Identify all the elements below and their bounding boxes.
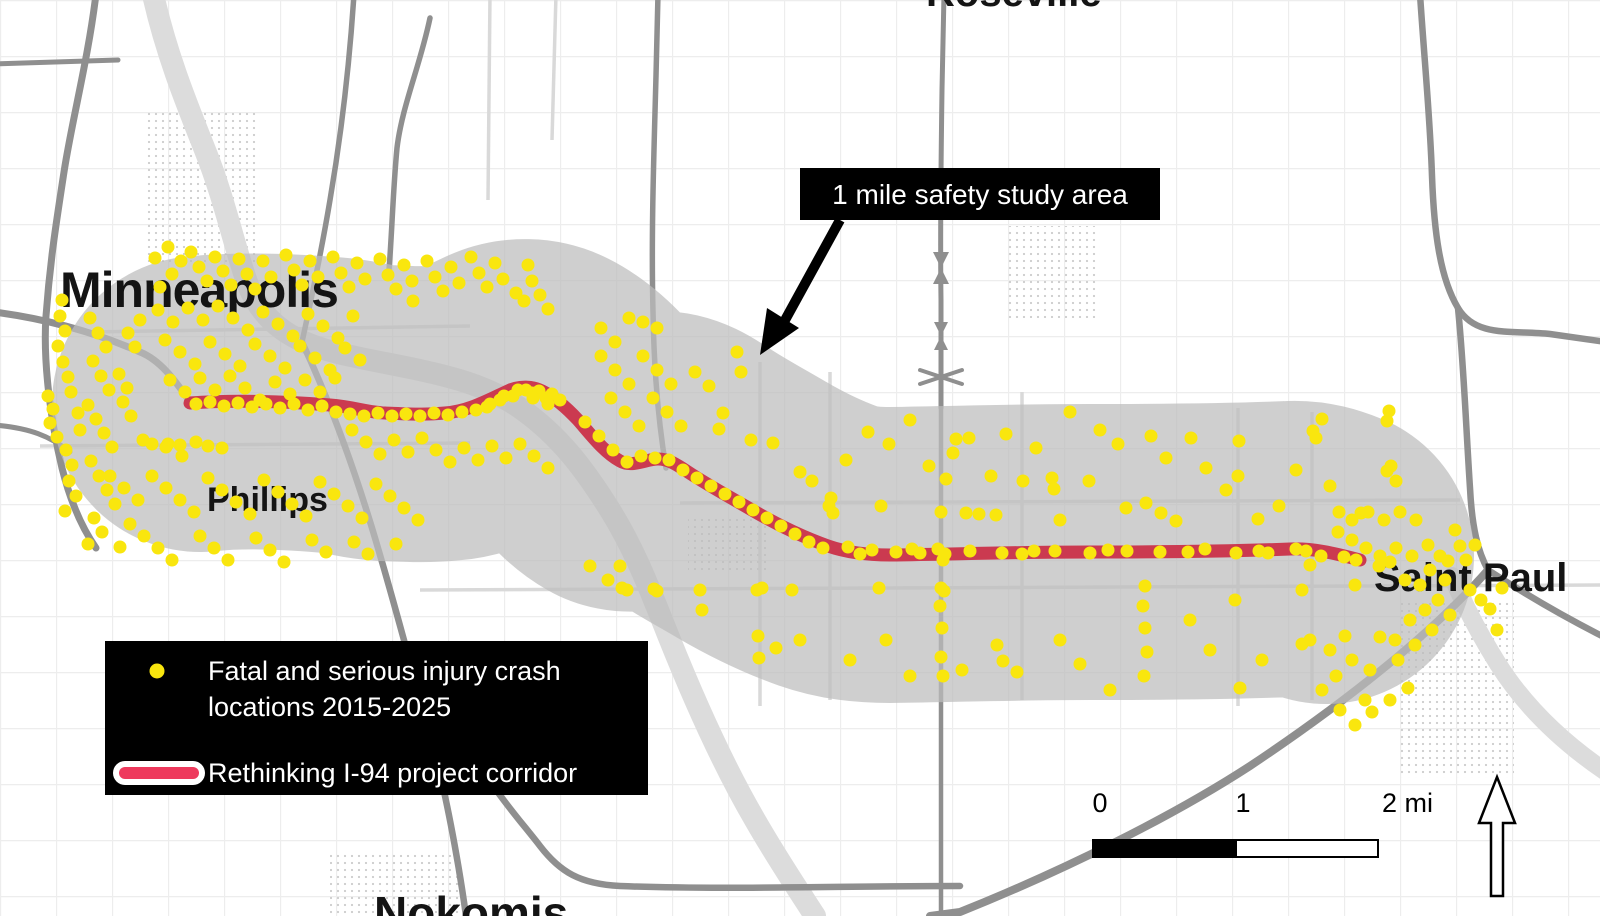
- crash-dot: [402, 446, 415, 459]
- crash-dot: [649, 452, 662, 465]
- crash-dot: [456, 406, 469, 419]
- crash-dot: [370, 478, 383, 491]
- crash-dot: [202, 440, 215, 453]
- crash-dot: [1185, 432, 1198, 445]
- crash-dot: [862, 426, 875, 439]
- crash-dot: [346, 424, 359, 437]
- crash-dot: [500, 452, 513, 465]
- crash-dot: [327, 251, 340, 264]
- crash-dot: [407, 295, 420, 308]
- crash-dot: [98, 427, 111, 440]
- crash-dot: [964, 545, 977, 558]
- crash-dot: [359, 273, 372, 286]
- crash-dot: [1112, 438, 1125, 451]
- crash-dot: [388, 434, 401, 447]
- crash-dot: [458, 442, 471, 455]
- crash-dot: [997, 655, 1010, 668]
- crash-dot: [786, 584, 799, 597]
- crash-dot: [194, 372, 207, 385]
- crash-dot: [1384, 694, 1397, 707]
- crash-dot: [621, 584, 634, 597]
- crash-dot: [651, 322, 664, 335]
- crash-dot: [937, 670, 950, 683]
- crash-dot: [428, 407, 441, 420]
- crash-dot: [190, 398, 203, 411]
- crash-dot: [382, 269, 395, 282]
- crash-dot: [1064, 406, 1077, 419]
- crash-dot: [1392, 654, 1405, 667]
- crash-dot: [437, 285, 450, 298]
- crash-dot: [756, 582, 769, 595]
- crash-dot: [890, 546, 903, 559]
- crash-dot: [1256, 654, 1269, 667]
- crash-dot: [442, 409, 455, 422]
- crash-dot: [623, 378, 636, 391]
- crash-dot: [412, 514, 425, 527]
- crash-dot: [1362, 506, 1375, 519]
- crash-dot: [935, 506, 948, 519]
- crash-dot: [677, 464, 690, 477]
- crash-dot: [1390, 542, 1403, 555]
- scale-tick-1: 1: [1235, 788, 1250, 818]
- crash-dot: [614, 560, 627, 573]
- crash-dot: [152, 542, 165, 555]
- crash-dot: [1316, 413, 1329, 426]
- crash-dot: [47, 403, 60, 416]
- crash-dot: [360, 436, 373, 449]
- crash-dot: [288, 398, 301, 411]
- crash-dot: [372, 407, 385, 420]
- crash-dot: [227, 312, 240, 325]
- crash-dot: [1074, 658, 1087, 671]
- crash-dot: [85, 455, 98, 468]
- crash-dot: [66, 459, 79, 472]
- crash-dot: [875, 500, 888, 513]
- crash-dot: [344, 408, 357, 421]
- crash-dot: [1366, 706, 1379, 719]
- crash-dot: [745, 434, 758, 447]
- crash-dot: [159, 334, 172, 347]
- crash-dot: [209, 384, 222, 397]
- crash-dot: [579, 416, 592, 429]
- crash-dot: [188, 506, 201, 519]
- crash-dot: [542, 398, 555, 411]
- crash-dot: [1120, 502, 1133, 515]
- crash-dot: [154, 281, 167, 294]
- crash-dot: [174, 494, 187, 507]
- crash-dot: [320, 546, 333, 559]
- crash-dot: [59, 505, 72, 518]
- crash-dot: [1160, 452, 1173, 465]
- crash-dot: [202, 472, 215, 485]
- crash-dot: [201, 275, 214, 288]
- crash-dot: [1011, 666, 1024, 679]
- crash-dot: [209, 251, 222, 264]
- crash-dot: [288, 264, 301, 277]
- crash-dot: [1324, 644, 1337, 657]
- crash-dot: [1121, 545, 1134, 558]
- crash-dot: [489, 257, 502, 270]
- crash-dot: [733, 496, 746, 509]
- crash-dot: [1232, 470, 1245, 483]
- crash-dot: [54, 310, 67, 323]
- crash-dot: [803, 536, 816, 549]
- crash-dot: [1339, 630, 1352, 643]
- crash-dot: [429, 271, 442, 284]
- crash-dot: [534, 289, 547, 302]
- safety-study-map: Minneapolis Phillips Saint Paul Rosevill…: [0, 0, 1600, 916]
- crash-dot: [1304, 634, 1317, 647]
- crash-dot: [1334, 704, 1347, 717]
- crash-dot: [1084, 547, 1097, 560]
- crash-dot: [42, 390, 55, 403]
- crash-dot: [212, 300, 225, 313]
- crash-dot: [257, 306, 270, 319]
- crash-dot: [794, 466, 807, 479]
- crash-dot: [1083, 475, 1096, 488]
- crash-dot: [300, 510, 313, 523]
- crash-dot: [95, 370, 108, 383]
- crash-dot: [90, 413, 103, 426]
- crash-dot: [358, 410, 371, 423]
- crash-dot: [1381, 465, 1394, 478]
- crash-dot: [775, 520, 788, 533]
- crash-dot: [609, 336, 622, 349]
- crash-dot: [219, 348, 232, 361]
- crash-dot: [103, 384, 116, 397]
- crash-dot: [481, 281, 494, 294]
- crash-dot: [257, 255, 270, 268]
- crash-dot: [430, 444, 443, 457]
- crash-dot: [473, 267, 486, 280]
- crash-dot: [232, 397, 245, 410]
- crash-dot: [767, 437, 780, 450]
- crash-dot: [1346, 654, 1359, 667]
- crash-dot: [204, 336, 217, 349]
- crash-dot: [960, 507, 973, 520]
- crash-dot: [689, 366, 702, 379]
- crash-dot: [747, 504, 760, 517]
- crash-dot: [390, 283, 403, 296]
- crash-dot: [121, 382, 134, 395]
- crash-dot: [904, 414, 917, 427]
- crash-dot: [1349, 579, 1362, 592]
- crash-dot: [1000, 428, 1013, 441]
- crash-dot: [390, 538, 403, 551]
- crash-dot: [794, 634, 807, 647]
- crash-dot: [605, 392, 618, 405]
- crash-dot: [204, 396, 217, 409]
- crash-dot: [44, 417, 57, 430]
- crash-dot: [445, 261, 458, 274]
- crash-dot: [304, 255, 317, 268]
- crash-dot: [1017, 475, 1030, 488]
- crash-dot: [691, 472, 704, 485]
- map-canvas: Minneapolis Phillips Saint Paul Rosevill…: [0, 0, 1600, 916]
- legend-item1-line2: locations 2015-2025: [208, 692, 451, 722]
- legend: Fatal and serious injury crash locations…: [105, 641, 648, 795]
- crash-dot: [735, 366, 748, 379]
- crash-dot: [465, 251, 478, 264]
- crash-dot: [1350, 554, 1363, 567]
- crash-dot: [113, 368, 126, 381]
- crash-dot: [619, 406, 632, 419]
- crash-dot: [595, 322, 608, 335]
- crash-dot: [398, 259, 411, 272]
- crash-dot: [1359, 694, 1372, 707]
- crash-dot: [1229, 594, 1242, 607]
- crash-dot: [854, 548, 867, 561]
- crash-dot: [1304, 559, 1317, 572]
- crash-dot: [1233, 435, 1246, 448]
- crash-dot: [100, 341, 113, 354]
- crash-dot: [554, 394, 567, 407]
- crash-dot: [1030, 442, 1043, 455]
- crash-dot: [956, 664, 969, 677]
- crash-dot: [1139, 580, 1152, 593]
- crash-dot: [472, 454, 485, 467]
- crash-dot: [182, 302, 195, 315]
- crash-dot: [264, 544, 277, 557]
- crash-dot: [486, 440, 499, 453]
- crash-dot: [1046, 472, 1059, 485]
- crash-dot: [866, 544, 879, 557]
- crash-dot: [950, 433, 963, 446]
- crash-dot: [507, 390, 520, 403]
- crash-dot: [174, 439, 187, 452]
- scale-tick-2: 2 mi: [1382, 788, 1433, 818]
- crash-dot: [306, 534, 319, 547]
- crash-dot: [1454, 540, 1467, 553]
- crash-dot: [314, 386, 327, 399]
- crash-dot: [56, 294, 69, 307]
- crash-dot: [122, 327, 135, 340]
- crash-dot: [1338, 551, 1351, 564]
- crash-dot: [51, 431, 64, 444]
- crash-dot: [309, 352, 322, 365]
- crash-dot: [1491, 624, 1504, 637]
- crash-dot: [1404, 614, 1417, 627]
- crash-dot: [1378, 514, 1391, 527]
- crash-dot: [246, 401, 259, 414]
- crash-dot: [1145, 430, 1158, 443]
- crash-dot: [146, 470, 159, 483]
- crash-dot: [260, 398, 273, 411]
- crash-dot-legend-icon: [150, 664, 165, 679]
- crash-dot: [104, 470, 117, 483]
- crash-dot: [230, 496, 243, 509]
- scale-bar-black-segment: [1093, 840, 1236, 857]
- crash-dot: [1016, 548, 1029, 561]
- crash-dot: [1310, 432, 1323, 445]
- crash-dot: [880, 634, 893, 647]
- crash-dot: [719, 488, 732, 501]
- crash-dot: [973, 508, 986, 521]
- crash-dot: [1300, 545, 1313, 558]
- crash-dot: [96, 526, 109, 539]
- crash-dot: [1316, 684, 1329, 697]
- crash-dot: [817, 542, 830, 555]
- crash-dot: [1464, 584, 1477, 597]
- crash-dot: [241, 268, 254, 281]
- crash-dot: [996, 547, 1009, 560]
- crash-dot: [963, 432, 976, 445]
- crash-dot: [731, 346, 744, 359]
- crash-dot: [789, 528, 802, 541]
- crash-dot: [1054, 634, 1067, 647]
- crash-dot: [1296, 584, 1309, 597]
- crash-dot: [132, 494, 145, 507]
- crash-dot: [398, 502, 411, 515]
- crash-dot: [249, 283, 262, 296]
- crash-dot: [527, 392, 540, 405]
- crash-dot: [414, 410, 427, 423]
- crash-dot: [63, 475, 76, 488]
- crash-dot: [138, 530, 151, 543]
- crash-dot: [1028, 545, 1041, 558]
- crash-dot: [1439, 574, 1452, 587]
- crash-dot: [1409, 639, 1422, 652]
- crash-dot: [985, 470, 998, 483]
- crash-dot: [1230, 547, 1243, 560]
- crash-dot: [179, 386, 192, 399]
- crash-dot: [302, 308, 315, 321]
- crash-dot: [299, 374, 312, 387]
- crash-dot: [329, 372, 342, 385]
- crash-dot: [1410, 514, 1423, 527]
- legend-item2: Rethinking I-94 project corridor: [208, 758, 577, 788]
- crash-dot: [166, 268, 179, 281]
- crash-dot: [661, 406, 674, 419]
- crash-dot: [146, 438, 159, 451]
- crash-dot: [335, 267, 348, 280]
- crash-dot: [904, 670, 917, 683]
- crash-dot: [82, 399, 95, 412]
- crash-dot: [1154, 546, 1167, 559]
- crash-dot: [806, 475, 819, 488]
- crash-dot: [1262, 547, 1275, 560]
- crash-dot: [65, 386, 78, 399]
- crash-dot: [1137, 600, 1150, 613]
- crash-dot: [286, 498, 299, 511]
- crash-dot: [1381, 415, 1394, 428]
- crash-dot: [651, 364, 664, 377]
- crash-dot: [1170, 515, 1183, 528]
- crash-dot: [883, 438, 896, 451]
- crash-dot: [406, 275, 419, 288]
- crash-dot: [1424, 564, 1437, 577]
- crash-dot: [57, 356, 70, 369]
- crash-dot: [174, 346, 187, 359]
- crash-dot: [222, 554, 235, 567]
- crash-dot: [218, 400, 231, 413]
- crash-dot: [269, 376, 282, 389]
- crash-dot: [761, 512, 774, 525]
- crash-dot: [316, 400, 329, 413]
- crash-dot: [481, 401, 494, 414]
- crash-dot: [274, 402, 287, 415]
- crash-dot: [494, 394, 507, 407]
- crash-dot: [1422, 539, 1435, 552]
- crash-dot: [208, 542, 221, 555]
- crash-dot: [118, 482, 131, 495]
- crash-dot: [1469, 539, 1482, 552]
- crash-dot: [1199, 543, 1212, 556]
- crash-dot: [1399, 574, 1412, 587]
- crash-dot: [125, 410, 138, 423]
- crash-dot: [109, 498, 122, 511]
- crash-dot: [991, 639, 1004, 652]
- crash-dot: [216, 442, 229, 455]
- crash-dot: [351, 257, 364, 270]
- crash-dot: [1419, 604, 1432, 617]
- crash-dot: [280, 249, 293, 262]
- crash-dot: [233, 253, 246, 266]
- crash-dot: [152, 304, 165, 317]
- crash-dot: [518, 295, 531, 308]
- crash-dot: [623, 312, 636, 325]
- crash-dot: [1184, 614, 1197, 627]
- crash-dot: [343, 281, 356, 294]
- crash-dot: [1432, 594, 1445, 607]
- crash-dot: [1290, 464, 1303, 477]
- crash-dot: [1182, 546, 1195, 559]
- crash-dot: [647, 392, 660, 405]
- crash-dot: [244, 508, 257, 521]
- corridor-legend-icon: [119, 767, 199, 779]
- crash-dot: [117, 396, 130, 409]
- crash-dot: [1252, 513, 1265, 526]
- crash-dot: [347, 310, 360, 323]
- crash-dot: [242, 324, 255, 337]
- crash-dot: [752, 630, 765, 643]
- crash-dot: [947, 447, 960, 460]
- crash-dot: [609, 364, 622, 377]
- crash-dot: [1332, 526, 1345, 539]
- crash-dot: [1402, 682, 1415, 695]
- crash-dot: [635, 450, 648, 463]
- crash-dot: [317, 320, 330, 333]
- crash-dot: [1364, 664, 1377, 677]
- crash-dot: [717, 407, 730, 420]
- label-nokomis: Nokomis: [374, 887, 568, 916]
- crash-dot: [362, 548, 375, 561]
- crash-dot: [160, 482, 173, 495]
- crash-dot: [514, 438, 527, 451]
- crash-dot: [1104, 684, 1117, 697]
- crash-dot: [339, 342, 352, 355]
- crash-dot: [935, 651, 948, 664]
- crash-dot: [60, 444, 73, 457]
- crash-dot: [651, 585, 664, 598]
- crash-dot: [665, 378, 678, 391]
- crash-dot: [1346, 514, 1359, 527]
- crash-dot: [703, 380, 716, 393]
- crash-dot: [633, 420, 646, 433]
- crash-dot: [1200, 462, 1213, 475]
- crash-dot: [906, 543, 919, 556]
- crash-dot: [384, 490, 397, 503]
- crash-dot: [595, 350, 608, 363]
- crash-dot: [453, 277, 466, 290]
- crash-dot: [593, 430, 606, 443]
- crash-dot: [770, 642, 783, 655]
- crash-dot: [294, 340, 307, 353]
- crash-dot: [314, 476, 327, 489]
- crash-dot: [753, 652, 766, 665]
- crash-dot: [1394, 506, 1407, 519]
- crash-dot: [175, 255, 188, 268]
